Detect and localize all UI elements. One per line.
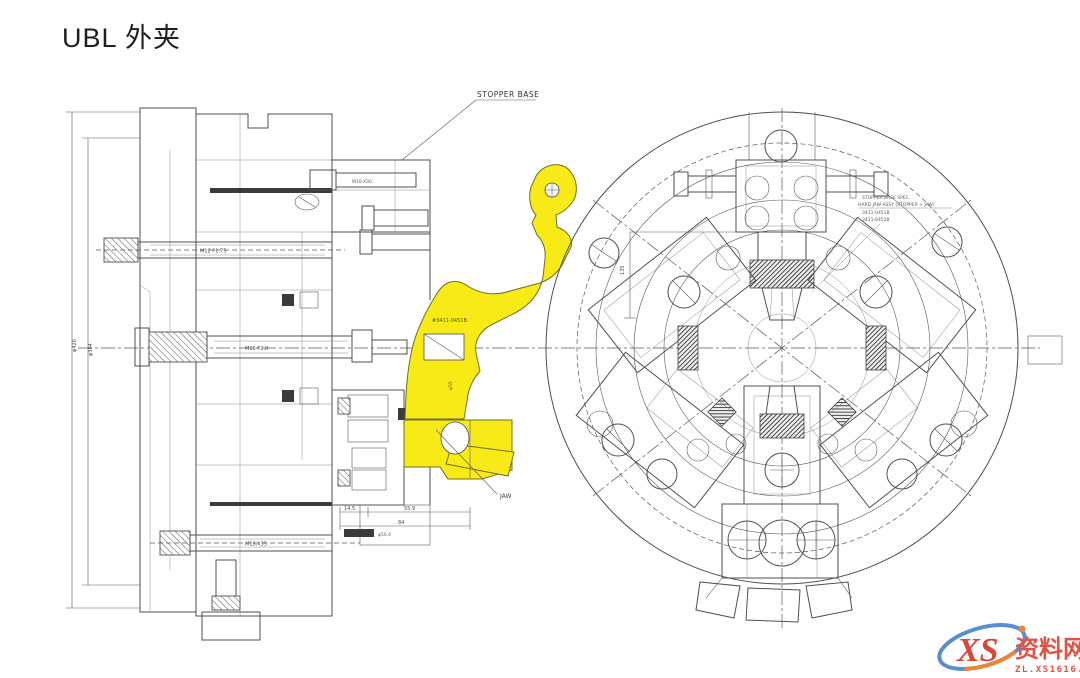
seal-bottom	[282, 390, 294, 402]
dim-55-label: φ55	[448, 381, 454, 390]
right-edge-tab	[1028, 336, 1062, 364]
hatch-west	[678, 326, 698, 370]
bottom-block	[722, 504, 838, 578]
dim-145-label: 14.5	[344, 506, 355, 512]
front-view: 135 STOPPER BASE SPEC. HARD JAW ASSY (ST…	[546, 108, 1062, 630]
annotation-line3: 3411-0451B	[862, 210, 890, 216]
bottom-dimensions: 14.5 55.9 84 φ50.4	[340, 506, 470, 538]
technical-drawing: φ420 φ304	[0, 0, 1080, 678]
dim-559-label: 55.9	[404, 506, 415, 512]
watermark: XS 资料网 ZL.XS1616.COM	[934, 617, 1080, 678]
bolt-stopper-label: M10-X30	[352, 179, 372, 185]
bore-band-bottom	[210, 502, 332, 506]
bolt-mid-head	[149, 332, 207, 362]
annotation-line4: 3411-0452B	[862, 217, 890, 223]
dim-504-label: φ50.4	[378, 532, 391, 538]
annotation-line2: HARD JAW ASSY (STOPPER + JAW)	[858, 202, 935, 208]
lever-plate-upper-left	[588, 217, 755, 372]
bolt-top: M12 P1.75	[96, 238, 345, 262]
hatch-north	[750, 260, 814, 288]
stopper-base-callout: STOPPER BASE	[402, 90, 539, 160]
annotation-line1: STOPPER BASE SPEC.	[862, 195, 910, 201]
seal-top	[282, 294, 294, 306]
dim-135-label: 135	[620, 265, 626, 275]
jaw-assembly-bottom	[696, 386, 856, 622]
bolt-middle: M16 P2.0	[135, 328, 407, 366]
bolt-bottom: M16-X35	[150, 531, 360, 555]
dim-outer-label: φ420	[72, 339, 78, 352]
stopper-base-label: STOPPER BASE	[477, 90, 539, 99]
jaw-part-number: #3411-0451B	[432, 318, 467, 324]
dim-135: 135	[620, 232, 738, 318]
watermark-url: ZL.XS1616.COM	[1015, 665, 1080, 675]
bolt-hole-upper-left	[589, 238, 619, 268]
watermark-site-name: 资料网	[1015, 635, 1080, 663]
slide: UBL 外夹 φ420 φ304	[0, 0, 1080, 678]
lever-plate-lower-left	[576, 352, 753, 507]
lever-plate-lower-right	[811, 352, 988, 507]
lever-plate-upper-right	[808, 217, 975, 372]
dim-84-label: 84	[398, 520, 404, 526]
jaw-upper-piece	[405, 165, 576, 419]
dim-inner-label: φ304	[88, 343, 94, 356]
bolt-top-label: M12 P1.75	[200, 249, 226, 255]
hatch-east	[866, 326, 886, 370]
logo-text: XS	[956, 632, 999, 669]
bolt-mid-label: M16 P2.0	[245, 346, 268, 352]
left-section-view: φ420 φ304	[66, 90, 576, 640]
logo-dot	[1019, 626, 1026, 633]
jaw-label: JAW	[499, 493, 511, 500]
bolt-bottom-label: M16-X35	[245, 542, 267, 548]
hatch-south	[760, 414, 804, 438]
